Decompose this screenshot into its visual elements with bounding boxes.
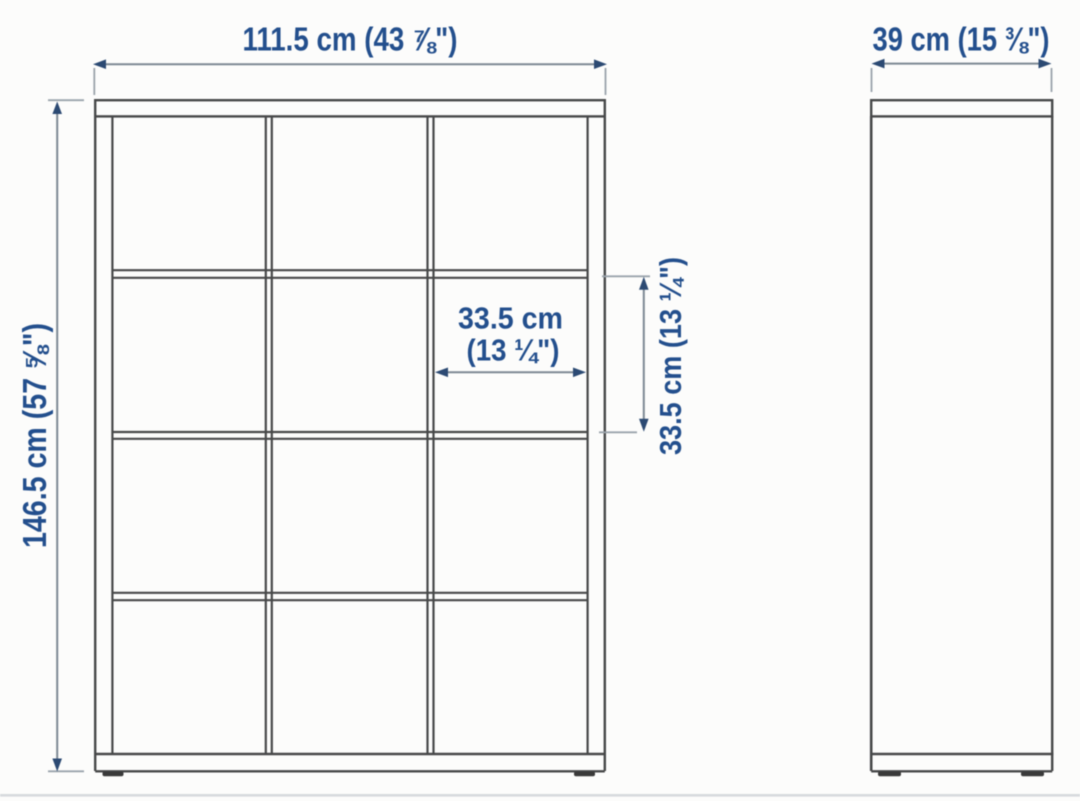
svg-text:146.5 cm (57 ⅝"): 146.5 cm (57 ⅝") — [16, 323, 53, 548]
svg-text:(13 ¼"): (13 ¼") — [467, 333, 560, 368]
svg-text:33.5 cm (13 ¼"): 33.5 cm (13 ¼") — [653, 257, 688, 455]
svg-text:39 cm (15 ⅜"): 39 cm (15 ⅜") — [873, 21, 1050, 58]
svg-text:111.5 cm (43 ⅞"): 111.5 cm (43 ⅞") — [243, 21, 458, 58]
svg-text:33.5 cm: 33.5 cm — [458, 301, 563, 336]
